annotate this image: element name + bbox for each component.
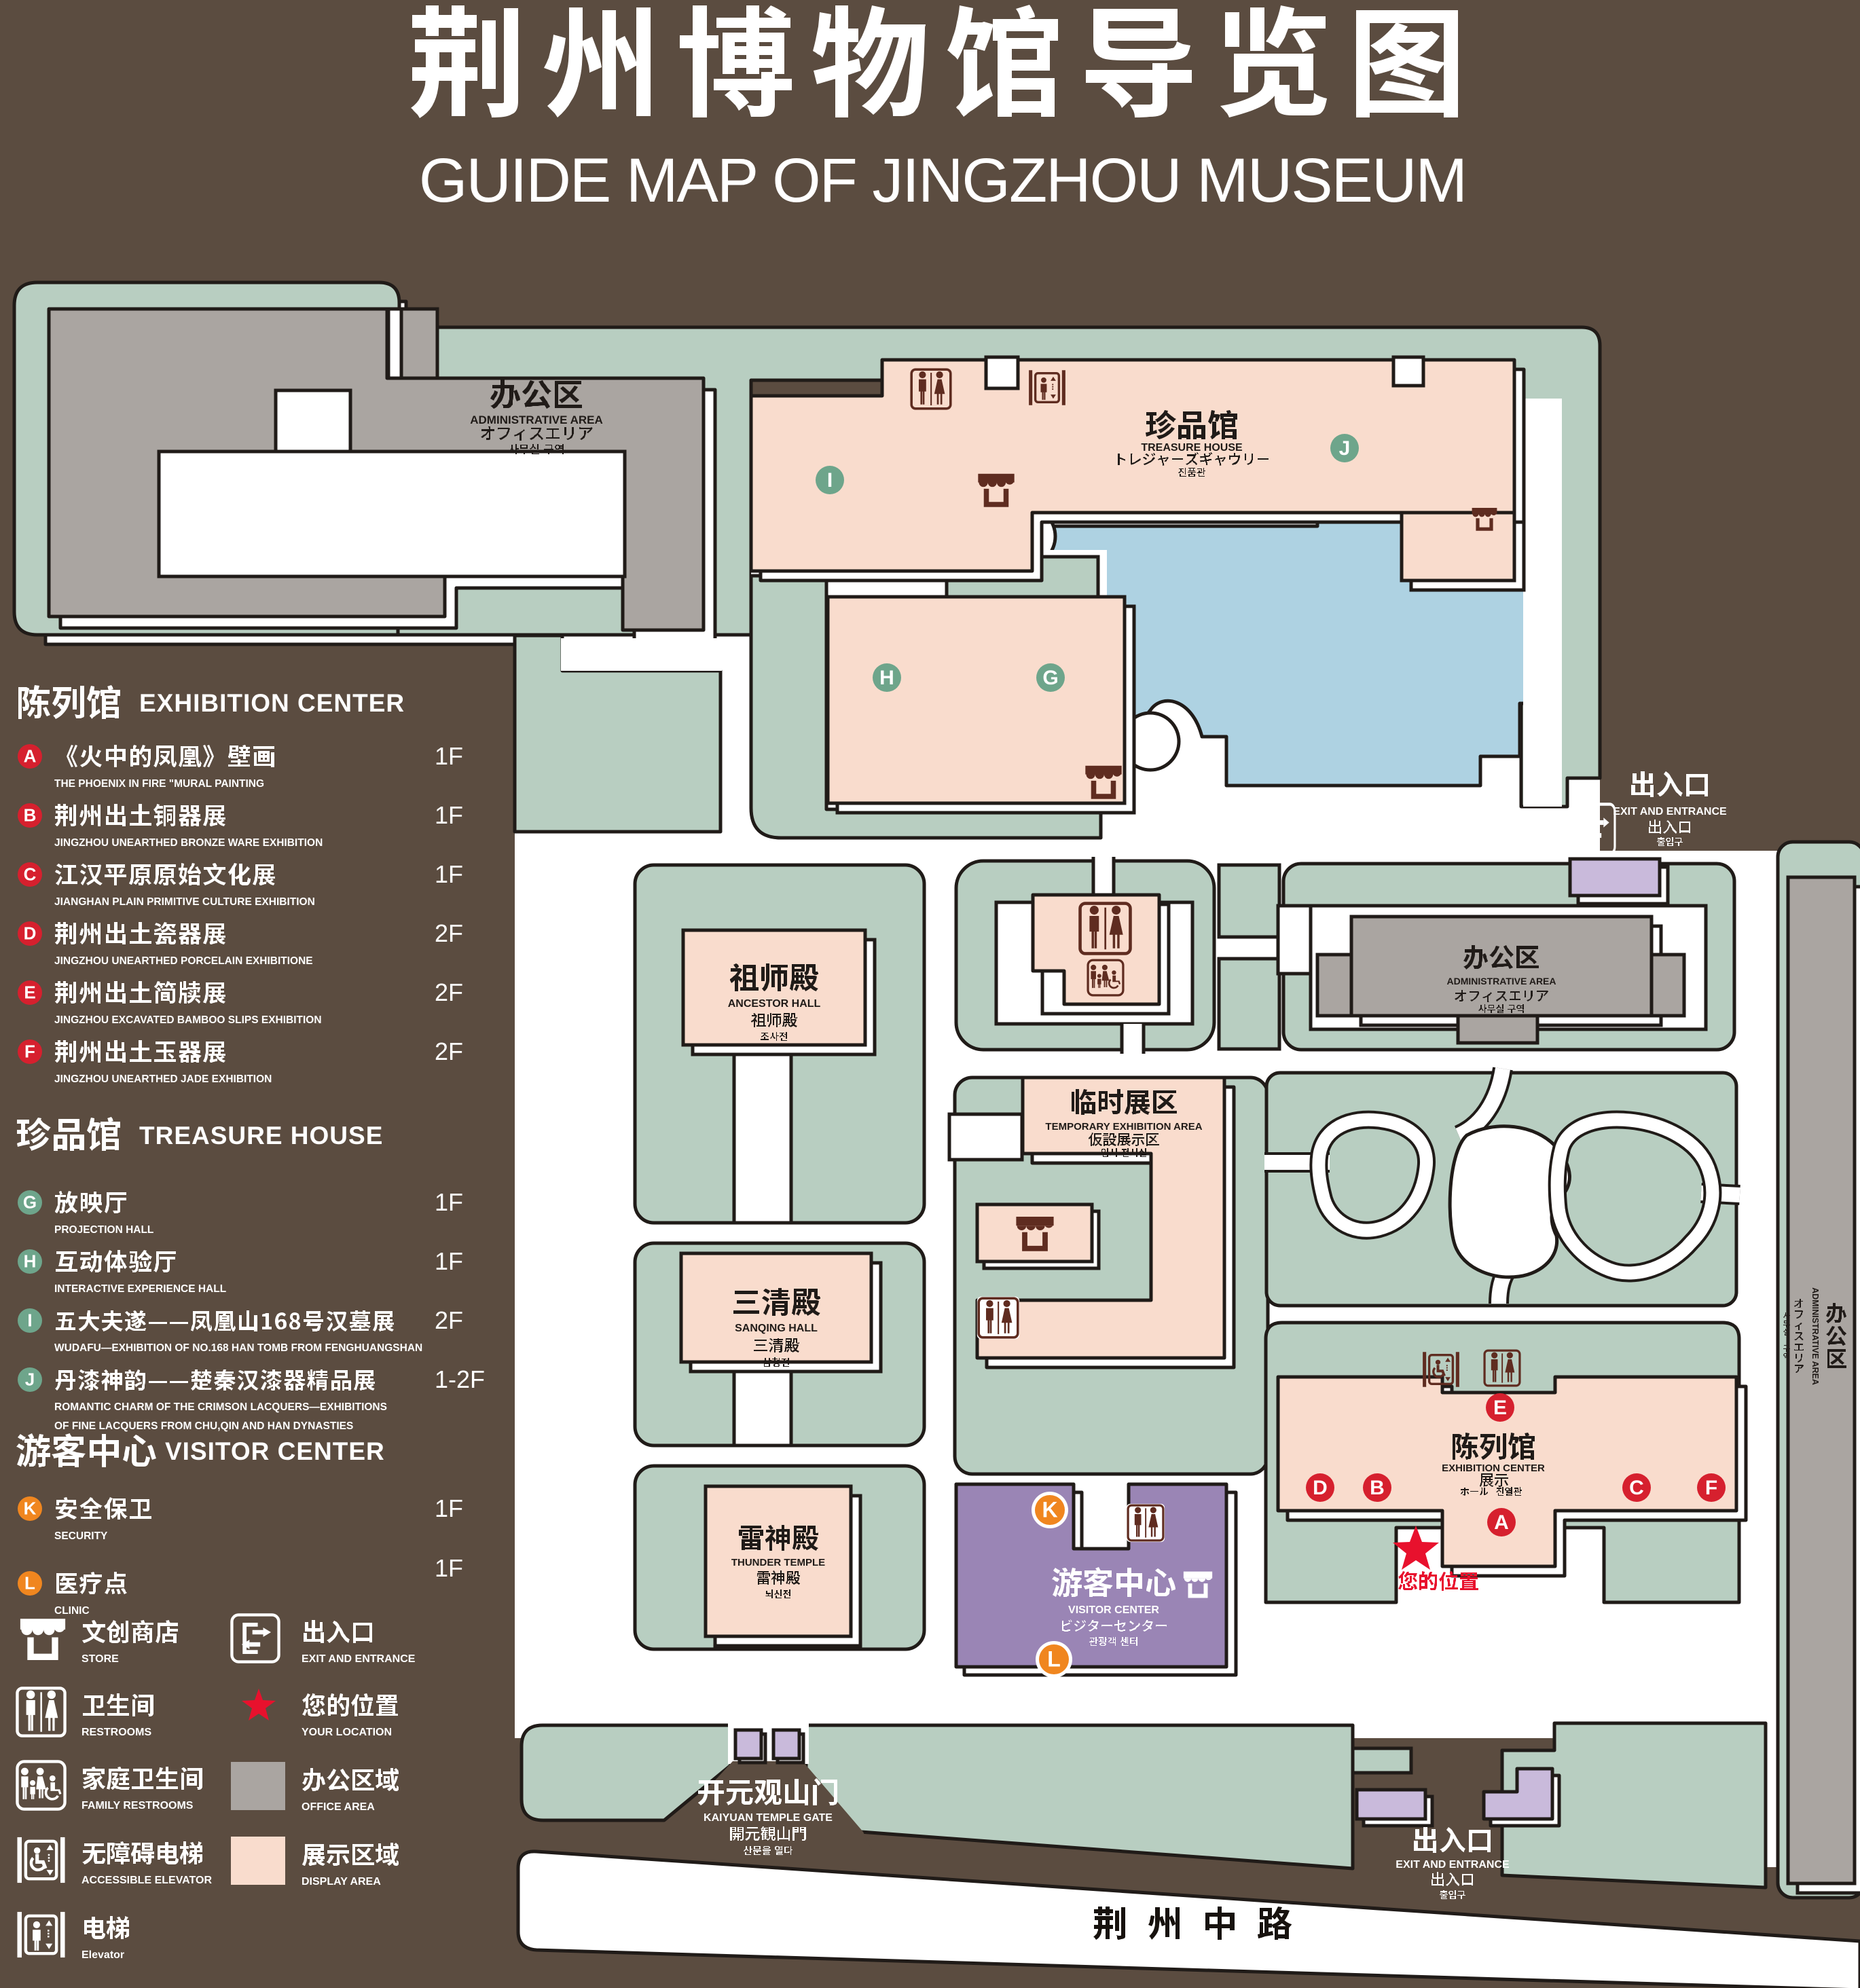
svg-text:VISITOR CENTER: VISITOR CENTER bbox=[1068, 1604, 1159, 1616]
svg-text:GUIDE MAP OF JINGZHOU MUSEUM: GUIDE MAP OF JINGZHOU MUSEUM bbox=[419, 146, 1466, 215]
svg-text:YOUR LOCATION: YOUR LOCATION bbox=[302, 1727, 392, 1738]
svg-text:1F: 1F bbox=[435, 742, 463, 770]
svg-text:1F: 1F bbox=[435, 1247, 463, 1275]
svg-text:JIANGHAN PLAIN PRIMITIVE CULTU: JIANGHAN PLAIN PRIMITIVE CULTURE EXHIBIT… bbox=[54, 896, 315, 908]
svg-text:JINGZHOU EXCAVATED BAMBOO SLIP: JINGZHOU EXCAVATED BAMBOO SLIPS EXHIBITI… bbox=[54, 1014, 322, 1026]
svg-text:2F: 2F bbox=[435, 919, 463, 947]
svg-text:I: I bbox=[827, 469, 833, 492]
svg-text:ROMANTIC CHARM OF THE CRIMSON: ROMANTIC CHARM OF THE CRIMSON LACQUERS—E… bbox=[54, 1401, 387, 1413]
svg-text:1F: 1F bbox=[435, 1554, 463, 1582]
svg-text:PROJECTION HALL: PROJECTION HALL bbox=[54, 1224, 153, 1236]
svg-text:ANCESTOR HALL: ANCESTOR HALL bbox=[728, 998, 821, 1010]
svg-text:C: C bbox=[1629, 1477, 1644, 1499]
svg-text:F: F bbox=[1705, 1477, 1717, 1499]
svg-text:ADMINISTRATIVE AREA: ADMINISTRATIVE AREA bbox=[470, 413, 603, 426]
svg-text:H: H bbox=[879, 667, 894, 689]
svg-text:1-2F: 1-2F bbox=[435, 1365, 485, 1393]
svg-text:WUDAFU—EXHIBITION OF NO.168 HA: WUDAFU—EXHIBITION OF NO.168 HAN TOMB FRO… bbox=[54, 1342, 422, 1354]
svg-text:1F: 1F bbox=[435, 860, 463, 888]
svg-text:RESTROOMS: RESTROOMS bbox=[81, 1727, 151, 1738]
svg-text:ADMINISTRATIVE AREA: ADMINISTRATIVE AREA bbox=[1810, 1287, 1820, 1385]
svg-text:EXIT AND ENTRANCE: EXIT AND ENTRANCE bbox=[1613, 806, 1727, 817]
svg-text:TREASURE HOUSE: TREASURE HOUSE bbox=[139, 1122, 383, 1149]
svg-text:TEMPORARY EXHIBITION AREA: TEMPORARY EXHIBITION AREA bbox=[1045, 1121, 1202, 1133]
svg-text:1F: 1F bbox=[435, 1494, 463, 1522]
svg-text:C: C bbox=[24, 864, 37, 885]
svg-text:TREASURE HOUSE: TREASURE HOUSE bbox=[1141, 442, 1243, 454]
svg-text:SECURITY: SECURITY bbox=[54, 1530, 108, 1542]
svg-text:EXIT AND ENTRANCE: EXIT AND ENTRANCE bbox=[1396, 1859, 1510, 1871]
svg-text:STORE: STORE bbox=[81, 1653, 119, 1665]
svg-text:D: D bbox=[24, 923, 37, 944]
svg-text:EXHIBITION CENTER: EXHIBITION CENTER bbox=[139, 689, 405, 717]
svg-text:KAIYUAN TEMPLE GATE: KAIYUAN TEMPLE GATE bbox=[704, 1812, 833, 1824]
svg-text:K: K bbox=[1042, 1498, 1057, 1522]
svg-text:THE PHOENIX IN FIRE "MURAL PAI: THE PHOENIX IN FIRE "MURAL PAINTING bbox=[54, 778, 264, 790]
svg-text:FAMILY RESTROOMS: FAMILY RESTROOMS bbox=[81, 1800, 194, 1811]
svg-text:G: G bbox=[23, 1192, 37, 1213]
svg-text:SANQING HALL: SANQING HALL bbox=[735, 1323, 818, 1334]
svg-text:L: L bbox=[1047, 1647, 1061, 1672]
svg-text:JINGZHOU UNEARTHED JADE EXHIBI: JINGZHOU UNEARTHED JADE EXHIBITION bbox=[54, 1073, 272, 1085]
svg-text:OFFICE AREA: OFFICE AREA bbox=[302, 1801, 375, 1813]
svg-text:EXIT AND ENTRANCE: EXIT AND ENTRANCE bbox=[302, 1653, 416, 1665]
svg-text:J: J bbox=[1339, 437, 1351, 460]
svg-text:K: K bbox=[24, 1498, 37, 1519]
svg-text:D: D bbox=[1313, 1477, 1328, 1499]
svg-text:2F: 2F bbox=[435, 1037, 463, 1065]
svg-text:E: E bbox=[1493, 1397, 1507, 1419]
svg-text:F: F bbox=[24, 1042, 35, 1062]
svg-text:A: A bbox=[1494, 1511, 1509, 1534]
svg-text:B: B bbox=[24, 805, 37, 826]
svg-text:2F: 2F bbox=[435, 978, 463, 1006]
svg-text:CLINIC: CLINIC bbox=[54, 1605, 90, 1617]
svg-text:DISPLAY AREA: DISPLAY AREA bbox=[302, 1876, 381, 1888]
svg-text:ACCESSIBLE ELEVATOR: ACCESSIBLE ELEVATOR bbox=[81, 1875, 212, 1886]
svg-text:I: I bbox=[27, 1310, 32, 1331]
svg-text:JINGZHOU UNEARTHED BRONZE WARE: JINGZHOU UNEARTHED BRONZE WARE EXHIBITIO… bbox=[54, 837, 323, 849]
svg-text:ADMINISTRATIVE AREA: ADMINISTRATIVE AREA bbox=[1447, 976, 1556, 987]
svg-text:VISITOR CENTER: VISITOR CENTER bbox=[165, 1437, 385, 1465]
svg-text:B: B bbox=[1370, 1477, 1385, 1499]
svg-text:1F: 1F bbox=[435, 801, 463, 829]
svg-text:H: H bbox=[24, 1251, 37, 1272]
svg-text:L: L bbox=[24, 1573, 35, 1594]
svg-text:OF FINE LACQUERS FROM CHU,QIN: OF FINE LACQUERS FROM CHU,QIN AND HAN DY… bbox=[54, 1420, 353, 1432]
svg-text:2F: 2F bbox=[435, 1306, 463, 1334]
svg-text:Elevator: Elevator bbox=[81, 1949, 124, 1961]
svg-text:1F: 1F bbox=[435, 1188, 463, 1216]
svg-text:EXHIBITION CENTER: EXHIBITION CENTER bbox=[1442, 1462, 1545, 1474]
svg-text:J: J bbox=[25, 1369, 35, 1390]
svg-text:A: A bbox=[24, 746, 37, 767]
svg-text:JINGZHOU UNEARTHED PORCELAIN E: JINGZHOU UNEARTHED PORCELAIN EXHIBITIONE bbox=[54, 955, 313, 967]
svg-text:E: E bbox=[24, 982, 35, 1003]
svg-text:G: G bbox=[1042, 667, 1058, 689]
svg-text:THUNDER TEMPLE: THUNDER TEMPLE bbox=[731, 1557, 825, 1568]
svg-text:INTERACTIVE EXPERIENCE HALL: INTERACTIVE EXPERIENCE HALL bbox=[54, 1283, 226, 1295]
